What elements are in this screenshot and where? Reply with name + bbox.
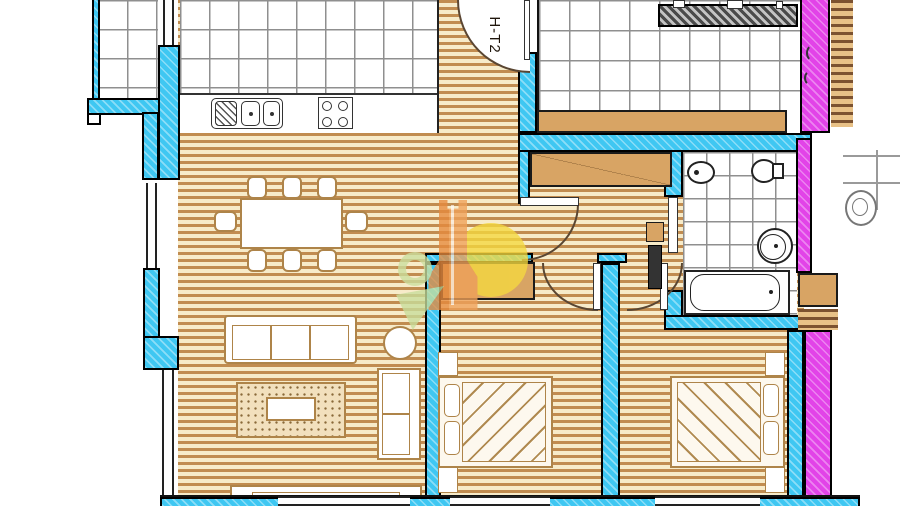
dining-chair-3 <box>317 176 337 199</box>
washbasin-drain <box>774 244 778 248</box>
bedroom1-door-leaf <box>593 263 601 310</box>
stove-burner-4 <box>338 117 348 127</box>
armchair-divider <box>382 413 410 415</box>
party-wall-bathroom <box>796 138 812 273</box>
bidet-drain <box>694 170 699 175</box>
living-west-wall-step <box>143 336 179 370</box>
toilet-tank <box>772 163 784 179</box>
stair-landing <box>798 273 838 307</box>
neighbor-tile-line-2 <box>843 182 900 184</box>
corridor-water-heater <box>648 245 662 289</box>
stair-treads-top <box>831 0 853 127</box>
laundry-fixture-1 <box>673 0 685 8</box>
dining-chair-7 <box>282 249 302 272</box>
kitchen-entry-divider <box>437 0 439 133</box>
kitchen-tile-floor <box>180 0 437 95</box>
laundry-fixture-3 <box>776 1 783 9</box>
sofa-divider-1 <box>270 325 272 360</box>
living-west-wall-upper <box>142 112 159 180</box>
sink-drainboard <box>215 101 237 126</box>
neighbor-tile-line-3 <box>876 150 878 210</box>
living-window-lower <box>162 370 174 497</box>
bedroom1-nightstand-top <box>438 352 458 376</box>
south-window-bedroom2 <box>655 496 760 506</box>
sofa-divider-2 <box>309 325 311 360</box>
dining-table <box>240 198 343 249</box>
bathtub-drain <box>769 290 773 294</box>
dining-chair-1 <box>247 176 267 199</box>
bedroom1-pillow-top <box>444 384 460 417</box>
dining-chair-4 <box>214 211 237 232</box>
corridor-cabinet <box>646 222 664 242</box>
dining-chair-2 <box>282 176 302 199</box>
watermark-logo <box>390 195 540 335</box>
south-window-living <box>278 496 410 506</box>
living-west-wall-mid <box>143 268 160 340</box>
living-window-upper <box>146 183 157 270</box>
neighbor-toilet-inner <box>852 198 868 216</box>
bedrooms-north-anchor <box>597 253 627 263</box>
coffee-table <box>266 397 316 421</box>
party-wall-bottom <box>804 330 832 497</box>
laundry-fixture-2 <box>727 0 743 9</box>
sink-drain-left <box>249 112 253 116</box>
bedroom1-nightstand-bottom <box>438 467 458 493</box>
washbasin-inner <box>760 234 786 260</box>
neighbor-arc-1 <box>806 44 822 62</box>
south-window-bedroom1 <box>450 496 550 506</box>
kitchen-balcony-window <box>163 0 174 45</box>
bathroom-south-wall <box>664 315 812 330</box>
hall-wardrobe <box>530 152 672 187</box>
bedroom2-nightstand-top <box>765 352 785 376</box>
bedroom1-blanket <box>462 382 546 462</box>
bedroom2-pillow-top <box>763 384 779 417</box>
kitchen-west-pier <box>158 45 180 180</box>
party-wall-top <box>800 0 830 133</box>
balcony-tile-floor <box>98 0 158 98</box>
neighbor-tile-line-1 <box>843 155 900 157</box>
floor-plan-canvas: H-T2 <box>0 0 900 506</box>
kitchen-counter-edge <box>180 93 437 95</box>
dining-chair-5 <box>345 211 368 232</box>
bedroom2-east-wall <box>787 330 804 497</box>
sink-drain-right <box>270 112 274 116</box>
stove-burner-2 <box>338 101 348 111</box>
entrance-door-label: H-T2 <box>485 3 503 67</box>
bedroom2-pillow-bottom <box>763 421 779 455</box>
watermark-tower-stripe <box>451 205 454 305</box>
bedroom-partition-wall <box>601 263 620 497</box>
stove-burner-1 <box>322 101 332 111</box>
watermark-ring-icon <box>398 252 432 286</box>
neighbor-arc-2 <box>804 70 818 86</box>
bidet-symbol <box>687 161 715 184</box>
entry-door-leaf <box>524 0 530 60</box>
bedroom1-pillow-bottom <box>444 421 460 455</box>
laundry-planter-band <box>537 110 787 133</box>
balcony-west-wall <box>92 0 100 112</box>
bathtub-inner <box>690 274 780 311</box>
sofa-seat <box>232 325 349 360</box>
bathroom-door-leaf <box>668 197 678 253</box>
dining-chair-6 <box>247 249 267 272</box>
stair-treads-mid <box>798 309 838 330</box>
bedroom2-nightstand-bottom <box>765 467 785 493</box>
dining-chair-8 <box>317 249 337 272</box>
bedroom2-blanket <box>677 382 761 462</box>
stove-burner-3 <box>322 117 332 127</box>
